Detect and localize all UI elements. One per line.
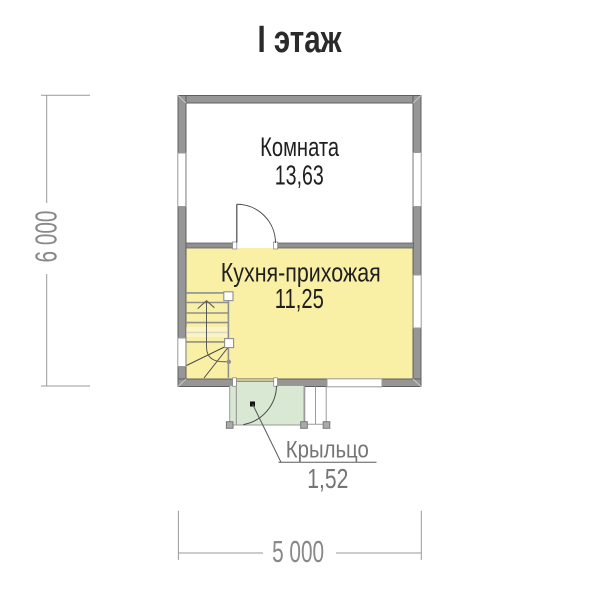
svg-text:Крыльцо: Крыльцо <box>286 437 369 464</box>
svg-text:1,52: 1,52 <box>307 463 348 494</box>
svg-text:13,63: 13,63 <box>275 160 324 191</box>
svg-text:6 000: 6 000 <box>30 211 64 263</box>
svg-text:5 000: 5 000 <box>272 535 324 569</box>
svg-text:Комната: Комната <box>260 132 340 162</box>
svg-text:I этаж: I этаж <box>258 19 343 61</box>
svg-text:11,25: 11,25 <box>275 283 324 314</box>
